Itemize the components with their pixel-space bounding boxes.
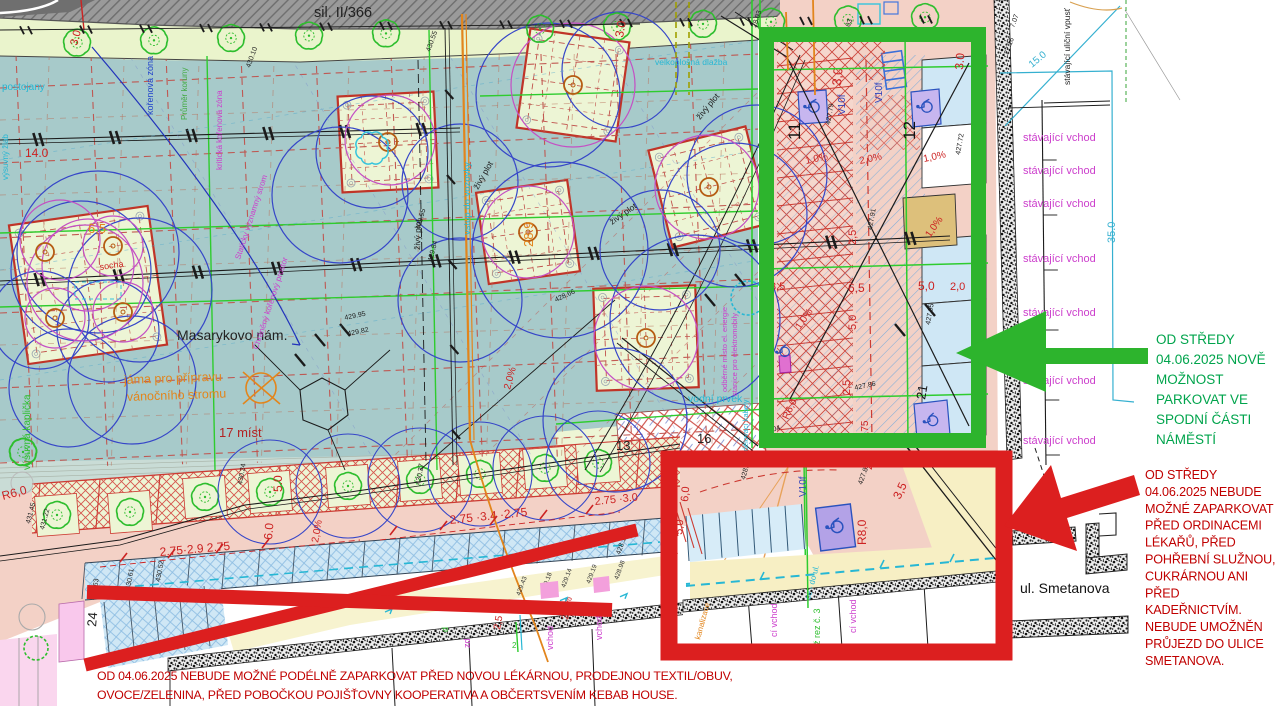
svg-text:kořenová zóna: kořenová zóna — [145, 56, 155, 115]
svg-text:21: 21 — [913, 384, 930, 401]
svg-text:V10f: V10f — [874, 82, 885, 103]
svg-text:CUKRÁRNOU ANI: CUKRÁRNOU ANI — [1145, 568, 1248, 583]
svg-text:stávající vchod: stávající vchod — [1023, 253, 1096, 265]
svg-text:V10f: V10f — [837, 94, 848, 115]
svg-text:kritická kořenová zóna: kritická kořenová zóna — [215, 90, 224, 170]
svg-text:6,5: 6,5 — [848, 281, 865, 295]
svg-text:V10f: V10f — [798, 476, 809, 497]
svg-text:NEBUDE UMOŽNĚN: NEBUDE UMOŽNĚN — [1145, 619, 1263, 634]
svg-text:14.0: 14.0 — [25, 146, 49, 160]
svg-text:ul. Smetanova: ul. Smetanova — [1020, 580, 1110, 596]
svg-text:16: 16 — [697, 431, 711, 446]
svg-text:LÉKAŘŮ, PŘED: LÉKAŘŮ, PŘED — [1145, 535, 1236, 550]
svg-text:výsuvný žlab: výsuvný žlab — [1, 134, 10, 180]
svg-text:sil. II/366: sil. II/366 — [314, 5, 372, 21]
svg-text:sdělovací kabely: sdělovací kabely — [741, 399, 750, 455]
svg-text:cí vchod: cí vchod — [848, 599, 858, 633]
svg-text:04.06.2025 NEBUDE: 04.06.2025 NEBUDE — [1145, 485, 1261, 499]
svg-text:6.5: 6.5 — [88, 221, 106, 236]
svg-text:cí vchod: cí vchod — [769, 603, 779, 637]
svg-text:d: d — [440, 627, 450, 632]
svg-text:KADEŘNICTVÍM.: KADEŘNICTVÍM. — [1145, 602, 1242, 617]
svg-text:POHŘEBNÍ SLUŽNOU,: POHŘEBNÍ SLUŽNOU, — [1145, 552, 1275, 567]
svg-text:6,0: 6,0 — [679, 486, 692, 502]
svg-text:5.0: 5.0 — [271, 475, 285, 492]
svg-text:2,0: 2,0 — [950, 281, 965, 293]
svg-text:MOŽNÉ ZAPARKOVAT: MOŽNÉ ZAPARKOVAT — [1145, 501, 1274, 516]
svg-text:vchod: vchod — [545, 626, 555, 650]
svg-text:velkoplošná dlažba: velkoplošná dlažba — [655, 57, 728, 67]
svg-text:Masarykovo nám.: Masarykovo nám. — [177, 327, 287, 343]
svg-text:PŘED: PŘED — [1145, 585, 1179, 600]
svg-text:stávající vchod: stávající vchod — [1023, 165, 1096, 177]
svg-text:R8,0: R8,0 — [855, 519, 869, 545]
svg-text:2: 2 — [512, 641, 517, 650]
svg-text:OD STŘEDY: OD STŘEDY — [1145, 467, 1218, 482]
svg-text:stávající vchod: stávající vchod — [1023, 435, 1096, 447]
svg-text:SPODNÍ ČÁSTI: SPODNÍ ČÁSTI — [1156, 412, 1251, 427]
svg-text:28.9: 28.9 — [521, 222, 536, 247]
svg-text:04.06.2025 NOVĚ: 04.06.2025 NOVĚ — [1156, 352, 1266, 367]
svg-text:3,0: 3,0 — [829, 67, 846, 86]
svg-text:PRŮJEZD DO ULICE: PRŮJEZD DO ULICE — [1145, 636, 1264, 651]
svg-text:12: 12 — [900, 121, 919, 140]
svg-text:vstup do vozovky: vstup do vozovky — [462, 162, 473, 235]
svg-text:stávající vchod: stávající vchod — [1023, 198, 1096, 210]
svg-text:5,0: 5,0 — [918, 279, 935, 293]
svg-text:11: 11 — [785, 122, 804, 140]
svg-text:odběrné místo el. energie: odběrné místo el. energie — [720, 307, 729, 392]
svg-text:PŘED ORDINACEMI: PŘED ORDINACEMI — [1145, 518, 1262, 533]
svg-text:Průměr koruny: Průměr koruny — [180, 68, 189, 120]
svg-text:postojany: postojany — [2, 82, 45, 93]
svg-text:MOŽNOST: MOŽNOST — [1156, 372, 1224, 387]
svg-text:5,0: 5,0 — [847, 315, 859, 330]
svg-text:stávající vchod: stávající vchod — [1023, 132, 1096, 144]
svg-text:stávající uliční vpusť: stávající uliční vpusť — [1062, 7, 1072, 85]
svg-text:3.0: 3.0 — [612, 19, 629, 38]
svg-text:PARKOVAT VE: PARKOVAT VE — [1156, 392, 1248, 407]
svg-text:výsuvná kaplička: výsuvná kaplička — [22, 394, 33, 470]
svg-text:ž rez č. 3: ž rez č. 3 — [812, 608, 822, 645]
svg-text:zd: zd — [462, 638, 472, 648]
svg-text:17 míst: 17 míst — [219, 425, 262, 440]
svg-text:stanice pro elektromobily: stanice pro elektromobily — [730, 313, 739, 396]
svg-text:OVOCE/ZELENINA, PŘED POBOČKOU: OVOCE/ZELENINA, PŘED POBOČKOU POJIŠŤOVNY… — [97, 687, 677, 702]
svg-text:SMETANOVA.: SMETANOVA. — [1145, 654, 1224, 668]
svg-text:35.0: 35.0 — [1106, 222, 1118, 243]
svg-text:NÁMĚSTÍ: NÁMĚSTÍ — [1156, 432, 1216, 447]
svg-text:OD STŘEDY: OD STŘEDY — [1156, 332, 1235, 347]
svg-text:2,5: 2,5 — [841, 380, 853, 395]
svg-text:vchod: vchod — [594, 616, 604, 640]
svg-text:3.0: 3.0 — [952, 52, 967, 70]
svg-text:24: 24 — [84, 612, 100, 628]
svg-text:OD 04.06.2025 NEBUDE MOŽNÉ POD: OD 04.06.2025 NEBUDE MOŽNÉ PODÉLNĚ ZAPAR… — [97, 668, 733, 683]
svg-text:13: 13 — [616, 438, 630, 453]
svg-text:6.0: 6.0 — [261, 522, 276, 540]
svg-text:2,5: 2,5 — [847, 230, 859, 245]
